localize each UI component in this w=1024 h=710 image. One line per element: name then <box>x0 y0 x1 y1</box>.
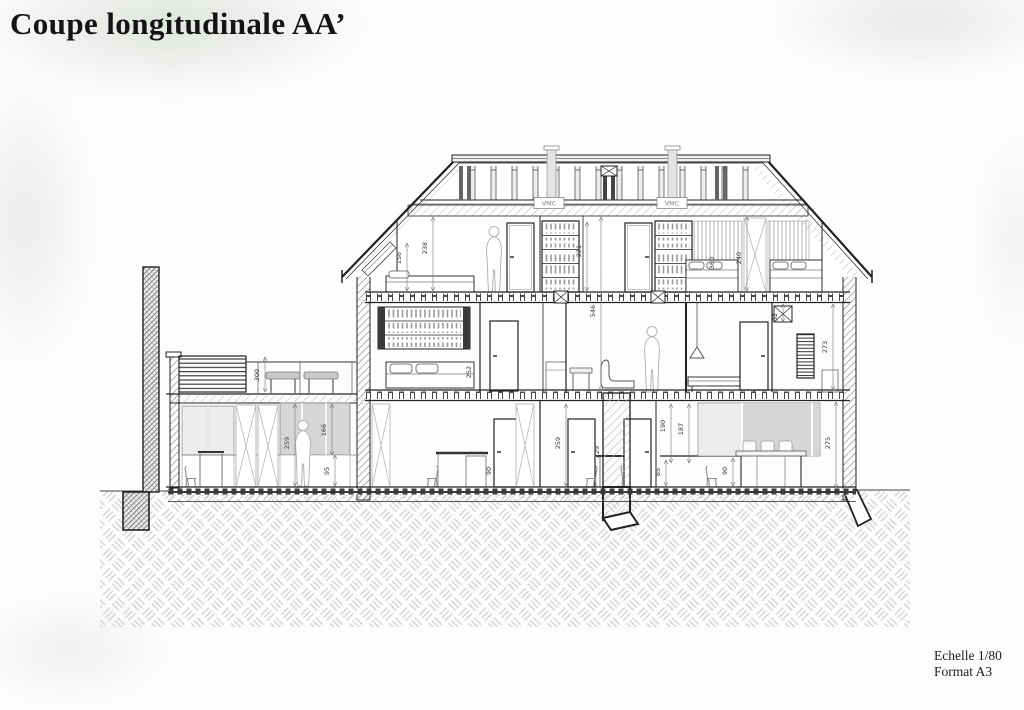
dimension-label: 259 <box>283 437 291 449</box>
dimension-label: 259 <box>554 437 562 449</box>
dimension-label: 187 <box>677 423 685 435</box>
section-drawing: VMCVMC 156238221546360240300252522732591… <box>0 0 1024 683</box>
ground-slab <box>166 487 856 502</box>
boundary-wall-footing <box>123 492 149 530</box>
dimension-label: 240 <box>735 252 743 264</box>
dimension-label: 300 <box>253 369 261 381</box>
first-floor-level <box>378 303 838 392</box>
attic-bed <box>770 260 822 292</box>
low-cabinet <box>822 370 838 392</box>
louver-screen <box>179 356 246 392</box>
scale-note: Echelle 1/80 <box>934 648 1002 664</box>
armchair <box>601 360 634 388</box>
dimension-label: 252 <box>465 366 473 378</box>
chair <box>427 466 438 487</box>
pendant-lamp <box>690 303 704 358</box>
dimension-leader <box>669 404 673 463</box>
dimension-label: 95 <box>323 467 331 475</box>
window-x-panel <box>236 405 278 487</box>
dimension-label: 52 <box>771 313 779 321</box>
first-floor-bed <box>386 362 474 388</box>
attic-floor-slab <box>365 291 850 303</box>
vmc-label: VMC <box>665 200 680 208</box>
ground-hatch <box>100 490 910 627</box>
dimension-label: 166 <box>320 424 328 436</box>
dimension-label: 238 <box>421 242 429 254</box>
stool <box>570 368 592 391</box>
glazing-wall <box>698 403 820 456</box>
person-silhouette <box>645 327 660 393</box>
chair <box>706 466 717 487</box>
dimension-label: 221 <box>575 245 583 257</box>
window-x-panel <box>372 404 390 487</box>
dimension-leader <box>731 458 735 486</box>
ground-floor-door <box>568 419 595 487</box>
first-floor-door <box>740 322 768 390</box>
dimension-label: 273 <box>821 341 829 353</box>
dimension-label: 360 <box>708 257 716 269</box>
vmc-label: VMC <box>542 200 557 208</box>
window-x-panel <box>516 404 534 487</box>
attic-door <box>507 223 534 292</box>
dimension-label: 275 <box>824 437 832 449</box>
dimension-label: 90 <box>721 467 729 475</box>
beam-x-marker <box>651 291 665 303</box>
dimension-leader <box>834 402 838 488</box>
dimension-leader <box>687 404 691 463</box>
dimension-label: 156 <box>395 252 403 264</box>
annex-roof-slab <box>166 394 357 403</box>
dimension-label: 190 <box>659 420 667 432</box>
dimension-label: 229 <box>593 446 601 458</box>
wardrobe-shelving <box>378 307 470 349</box>
radiator <box>797 334 814 378</box>
beam-x-marker <box>554 291 568 303</box>
terrace-table <box>304 372 338 393</box>
attic-door <box>625 223 652 292</box>
format-note: Format A3 <box>934 664 1002 680</box>
desk <box>436 453 488 487</box>
first-floor-door <box>490 321 518 391</box>
title-block: Echelle 1/80 Format A3 <box>934 648 1002 681</box>
dimension-label: 90 <box>485 467 493 475</box>
attic-ceiling-slab <box>408 205 808 216</box>
console-table <box>546 362 566 390</box>
dimension-label: 546 <box>589 305 597 317</box>
dimension-leader <box>664 460 668 486</box>
terrace-table <box>266 372 300 393</box>
dimension-label: 85 <box>654 468 662 476</box>
attic-bookshelf <box>542 221 579 292</box>
